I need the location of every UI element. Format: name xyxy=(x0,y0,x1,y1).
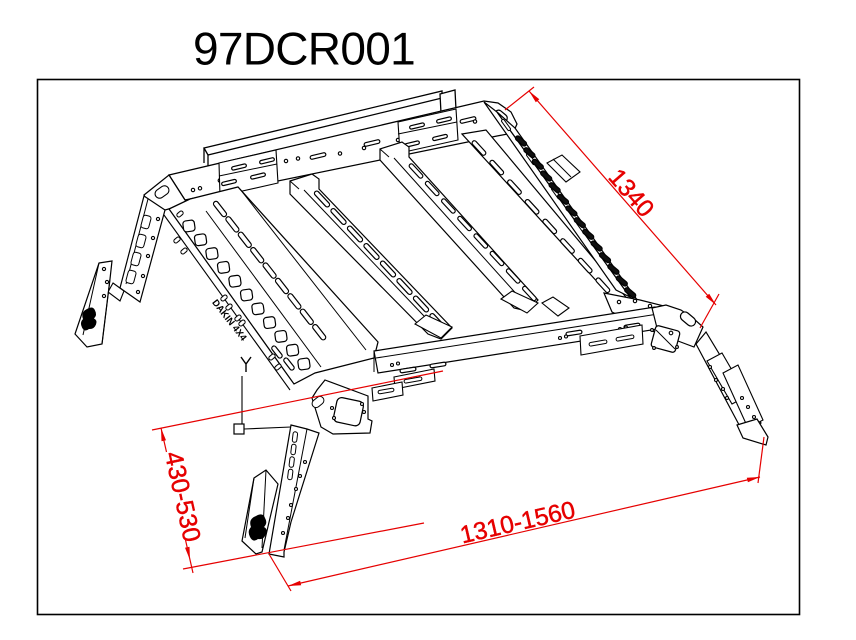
svg-text:97DCR001: 97DCR001 xyxy=(193,22,415,74)
